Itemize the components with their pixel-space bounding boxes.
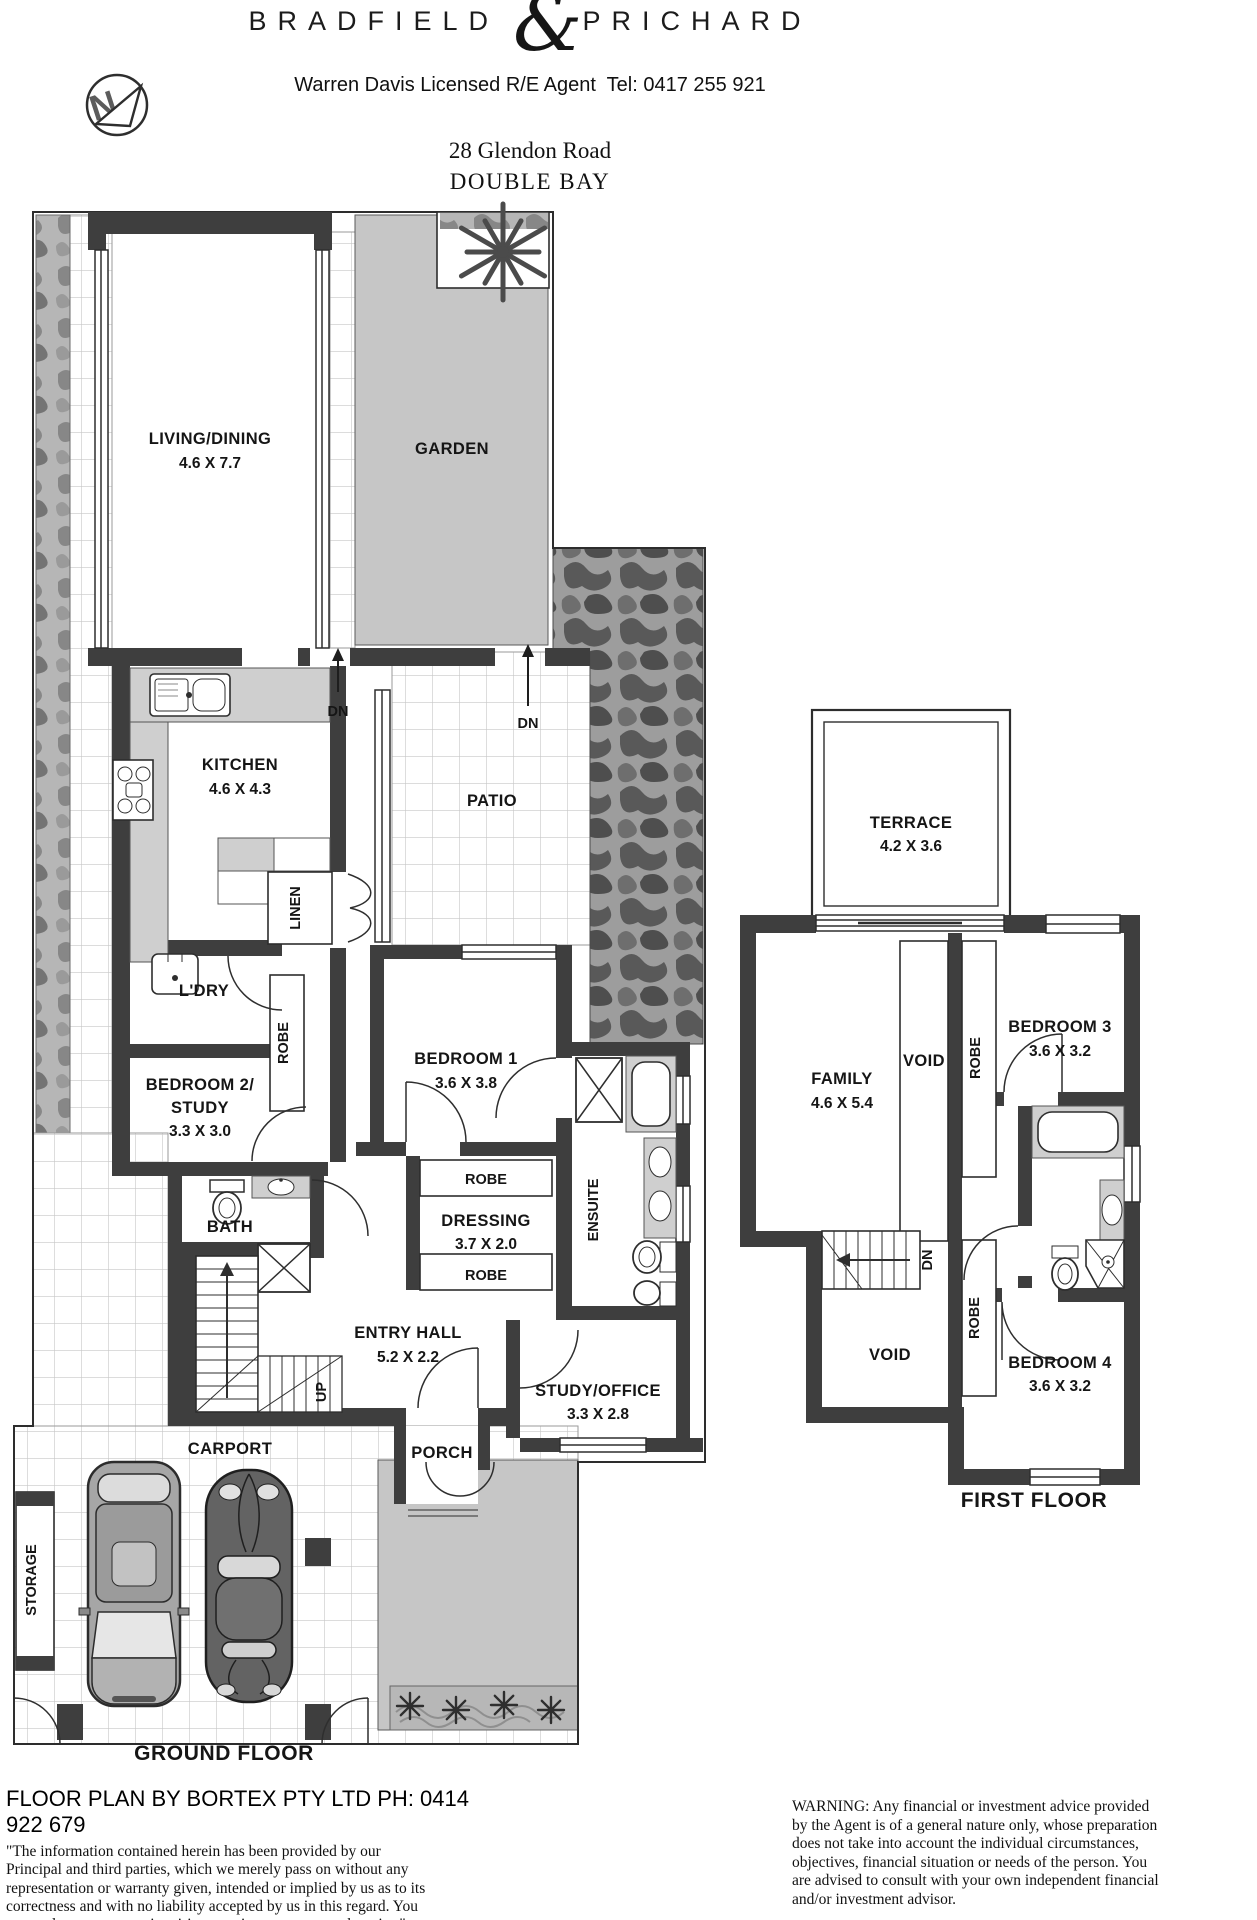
first-floor-plan: TERRACE 4.2 X 3.6 FAMILY 4.6 X 5.4 VOID …	[740, 710, 1140, 1512]
family-dims: 4.6 X 5.4	[811, 1095, 873, 1112]
study-label: STUDY/OFFICE	[535, 1382, 661, 1400]
bedroom3-label: BEDROOM 3	[1008, 1018, 1112, 1036]
bedroom2-label1: BEDROOM 2/	[146, 1076, 255, 1094]
kitchen-label: KITCHEN	[202, 756, 278, 774]
sink-icon	[150, 674, 230, 716]
first-bathroom-fixtures	[1032, 1106, 1124, 1290]
entry-dims: 5.2 X 2.2	[377, 1349, 439, 1366]
up-label: UP	[314, 1382, 330, 1402]
living-dims: 4.6 X 7.7	[179, 455, 241, 472]
bedroom1-dims: 3.6 X 3.8	[435, 1075, 497, 1092]
basin-icon	[649, 1147, 671, 1177]
toilet-icon	[1052, 1246, 1078, 1290]
bedroom3-dims: 3.6 X 3.2	[1029, 1043, 1091, 1060]
void-upper-label: VOID	[903, 1052, 945, 1070]
car-beetle-icon	[206, 1470, 292, 1702]
shower-icon	[258, 1244, 310, 1292]
shower-icon	[576, 1058, 622, 1122]
storage-label: STORAGE	[24, 1544, 40, 1616]
corner-shower-icon	[1086, 1240, 1124, 1288]
bath-label: BATH	[207, 1218, 253, 1236]
robe-bedroom4-label: ROBE	[967, 1297, 983, 1339]
robe-lower-label: ROBE	[465, 1268, 507, 1284]
entry-label: ENTRY HALL	[354, 1324, 462, 1342]
dn-patio-label: DN	[518, 716, 539, 732]
disclaimer-text: "The information contained herein has be…	[6, 1843, 436, 1920]
bedroom1-label: BEDROOM 1	[414, 1050, 518, 1068]
bathtub-icon	[626, 1056, 676, 1132]
living-label: LIVING/DINING	[149, 430, 272, 448]
porch-floor	[406, 1426, 478, 1504]
bedroom2-dims: 3.3 X 3.0	[169, 1123, 231, 1140]
bathtub-icon	[1038, 1112, 1118, 1152]
stove-icon	[113, 760, 153, 820]
dn-kitchen-label: DN	[328, 704, 349, 720]
kitchen-dims: 4.6 X 4.3	[209, 781, 271, 798]
dressing-dims: 3.7 X 2.0	[455, 1236, 517, 1253]
bedroom2-label2: STUDY	[171, 1099, 229, 1117]
bifold-door	[348, 874, 371, 942]
dn-label: DN	[920, 1250, 936, 1271]
basin-icon	[1102, 1195, 1122, 1225]
floor-plans: LIVING/DINING 4.6 X 7.7 GARDEN KITCHEN 4…	[0, 0, 1257, 1920]
porch-label: PORCH	[411, 1444, 473, 1462]
stairs-down	[822, 1231, 920, 1289]
bedroom4-label: BEDROOM 4	[1008, 1354, 1112, 1372]
bidet-icon	[634, 1281, 676, 1306]
first-floor-title: FIRST FLOOR	[961, 1489, 1108, 1512]
void-lower-label: VOID	[869, 1346, 911, 1364]
basin-icon	[252, 1176, 310, 1198]
ground-floor-title: GROUND FLOOR	[134, 1742, 314, 1765]
bedroom4-dims: 3.6 X 3.2	[1029, 1378, 1091, 1395]
toilet-icon	[633, 1241, 676, 1273]
footer-left: FLOOR PLAN BY BORTEX PTY LTD PH: 0414 92…	[6, 1786, 484, 1920]
laundry-label: L'DRY	[179, 982, 229, 1000]
hedge-strip	[440, 213, 548, 229]
linen-label: LINEN	[288, 886, 304, 930]
terrace-label: TERRACE	[870, 814, 953, 832]
ensuite-label: ENSUITE	[586, 1178, 602, 1241]
study-dims: 3.3 X 2.8	[567, 1406, 629, 1423]
robe-bedroom2-label: ROBE	[276, 1022, 292, 1064]
robe-bedroom3-label: ROBE	[968, 1037, 984, 1079]
family-label: FAMILY	[811, 1070, 872, 1088]
basin-icon	[649, 1191, 671, 1221]
robe-upper-label: ROBE	[465, 1172, 507, 1188]
warning-text: WARNING: Any financial or investment adv…	[792, 1798, 1168, 1910]
carport-label: CARPORT	[188, 1440, 272, 1458]
terrace-dims: 4.2 X 3.6	[880, 838, 942, 855]
floorplan-page: BRADFIELD&PRICHARD Warren Davis Licensed…	[0, 0, 1257, 1920]
car-wagon-icon	[79, 1462, 189, 1706]
floorplan-credit: FLOOR PLAN BY BORTEX PTY LTD PH: 0414 92…	[6, 1786, 484, 1838]
ground-floor-plan: LIVING/DINING 4.6 X 7.7 GARDEN KITCHEN 4…	[14, 204, 705, 1765]
dressing-label: DRESSING	[441, 1212, 530, 1230]
patio-label: PATIO	[467, 792, 517, 810]
garden-label: GARDEN	[415, 440, 489, 458]
